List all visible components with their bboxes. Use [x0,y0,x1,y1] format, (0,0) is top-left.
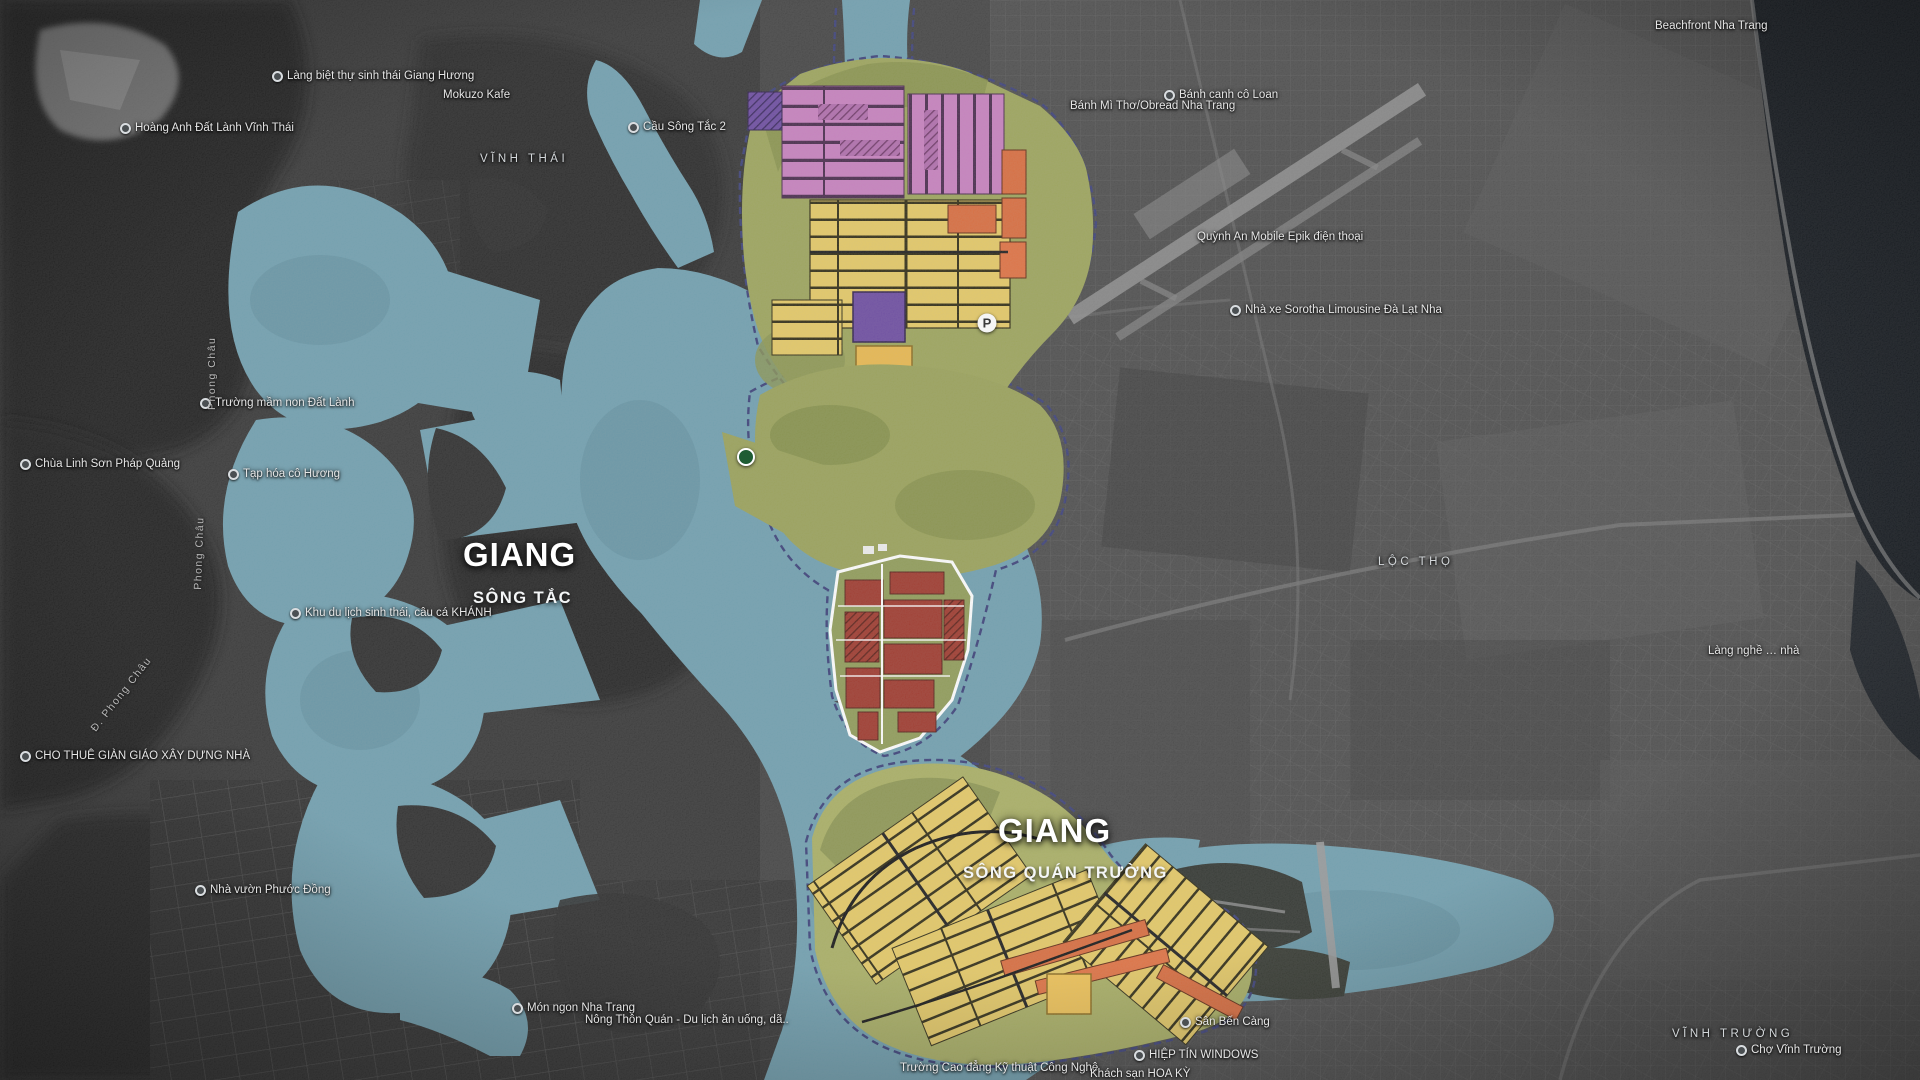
poi-label[interactable]: Làng nghề … nhà [1708,645,1799,657]
poi-icon [272,71,283,82]
poi-label[interactable]: Mokuzo Kafe [443,89,510,101]
street-label: Phong Châu [192,516,207,590]
area-label: LỘC THỌ [1378,556,1453,568]
poi-label-text: Chợ Vĩnh Trường [1751,1044,1842,1056]
poi-label-text: Quỳnh An Mobile Epik điện thoại [1197,231,1363,243]
poi-dot-marker[interactable] [737,448,755,466]
poi-label-text: Chùa Linh Sơn Pháp Quảng [35,458,180,470]
poi-label-text: Trường Cao đẳng Kỹ thuật Công Nghệ [900,1062,1098,1074]
poi-label-text: Beachfront Nha Trang [1655,20,1768,32]
poi-label[interactable]: Nhà vườn Phước Đồng [195,884,331,896]
poi-icon [1230,305,1241,316]
poi-icon [20,751,31,762]
poi-label[interactable]: Khách sạn HOA KỲ [1090,1068,1190,1080]
river-name-label: GIANG [463,536,576,574]
poi-label-text: Khu du lịch sinh thái, câu cá KHÁNH [305,607,492,619]
poi-label-text: CHO THUÊ GIÀN GIÁO XÂY DỰNG NHÀ [35,750,250,762]
street-label: Phong Châu [206,337,218,410]
poi-label-text: Sân Bến Càng [1195,1016,1270,1028]
poi-label[interactable]: Tạp hóa cô Hương [228,468,340,480]
poi-label[interactable]: Trường mầm non Đất Lành [200,397,354,409]
poi-label[interactable]: Nông Thôn Quán - Du lịch ăn uống, dã.. [585,1014,789,1026]
poi-label[interactable]: Sân Bến Càng [1180,1016,1270,1028]
poi-label-text: Cầu Sông Tắc 2 [643,121,726,133]
area-label: VĨNH TRƯỜNG [1672,1028,1793,1040]
parking-marker[interactable]: P [978,314,997,333]
poi-label-text: Trường mầm non Đất Lành [215,397,354,409]
river-subname-label: SÔNG TẮC [473,589,572,608]
poi-icon [290,608,301,619]
poi-label[interactable]: Món ngon Nha Trang [512,1002,635,1014]
poi-icon [628,122,639,133]
poi-label[interactable]: Bánh Mì Thơ/Obread Nha Trang [1070,100,1235,112]
river-name-label: GIANG [998,812,1111,850]
poi-icon [1134,1050,1145,1061]
poi-label-text: Hoàng Anh Đất Lành Vĩnh Thái [135,122,294,134]
poi-label-text: Tạp hóa cô Hương [243,468,340,480]
poi-icon [1164,90,1175,101]
poi-label-text: Món ngon Nha Trang [527,1002,635,1014]
poi-label-text: Mokuzo Kafe [443,89,510,101]
poi-icon [512,1003,523,1014]
poi-label[interactable]: Làng biệt thự sinh thái Giang Hương [272,70,474,82]
poi-label[interactable]: Khu du lịch sinh thái, câu cá KHÁNH [290,607,492,619]
poi-label[interactable]: Quỳnh An Mobile Epik điện thoại [1197,231,1363,243]
map-canvas[interactable]: Làng biệt thự sinh thái Giang HươngHoàng… [0,0,1920,1080]
poi-icon [1180,1017,1191,1028]
poi-label[interactable]: Cầu Sông Tắc 2 [628,121,726,133]
poi-label[interactable]: HIỆP TÍN WINDOWS [1134,1049,1258,1061]
map-labels-layer: Làng biệt thự sinh thái Giang HươngHoàng… [0,0,1920,1080]
poi-icon [20,459,31,470]
street-label: Đ. Phong Châu [89,655,155,734]
poi-icon [195,885,206,896]
poi-label-text: Bánh Mì Thơ/Obread Nha Trang [1070,100,1235,112]
poi-label[interactable]: Chùa Linh Sơn Pháp Quảng [20,458,180,470]
poi-icon [1736,1045,1747,1056]
poi-label-text: Nhà xe Sorotha Limousine Đà Lạt Nha [1245,304,1442,316]
poi-label[interactable]: Trường Cao đẳng Kỹ thuật Công Nghệ [900,1062,1098,1074]
poi-label[interactable]: Nhà xe Sorotha Limousine Đà Lạt Nha [1230,304,1442,316]
poi-icon [120,123,131,134]
poi-label[interactable]: CHO THUÊ GIÀN GIÁO XÂY DỰNG NHÀ [20,750,250,762]
poi-label-text: Khách sạn HOA KỲ [1090,1068,1190,1080]
poi-label-text: Nông Thôn Quán - Du lịch ăn uống, dã.. [585,1014,789,1026]
poi-label[interactable]: Chợ Vĩnh Trường [1736,1044,1842,1056]
poi-label-text: Nhà vườn Phước Đồng [210,884,331,896]
poi-label-text: Làng nghề … nhà [1708,645,1799,657]
poi-label[interactable]: Beachfront Nha Trang [1655,20,1768,32]
river-subname-label: SÔNG QUÁN TRƯỜNG [963,864,1168,883]
poi-icon [228,469,239,480]
area-label: VĨNH THÁI [480,153,568,165]
poi-label[interactable]: Hoàng Anh Đất Lành Vĩnh Thái [120,122,294,134]
poi-label-text: HIỆP TÍN WINDOWS [1149,1049,1258,1061]
poi-label-text: Làng biệt thự sinh thái Giang Hương [287,70,474,82]
